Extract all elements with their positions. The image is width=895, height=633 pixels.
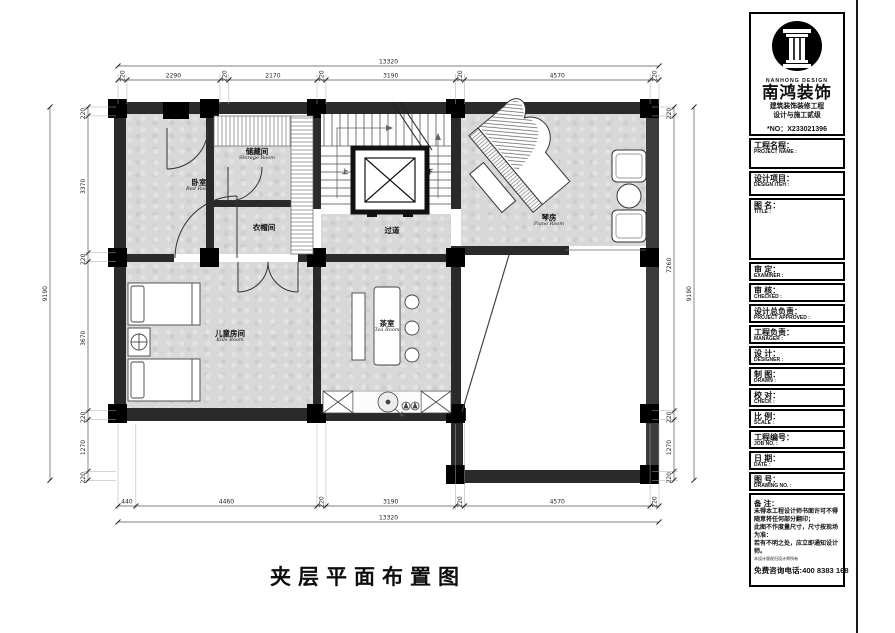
- svg-text:2290: 2290: [166, 73, 181, 80]
- wall-segment: [313, 258, 321, 418]
- notes-fine-print: 本设计版权归设计师所有: [754, 556, 840, 562]
- drawing-sheet: 上 下: [0, 0, 895, 633]
- notes-box: 备 注： 未得本工程设计师书面许可不得 随意将任何部分翻印； 此图不作度量尺寸，…: [749, 493, 845, 587]
- svg-text:9190: 9190: [686, 286, 693, 301]
- svg-text:220: 220: [318, 70, 325, 82]
- field-drawn: 制 图：DRAWN :: [749, 367, 845, 386]
- license-no: *NO：X233021396: [751, 124, 843, 134]
- column-marker: [640, 248, 659, 267]
- column-marker: [108, 248, 127, 267]
- svg-text:13320: 13320: [379, 515, 398, 522]
- svg-text:3370: 3370: [80, 179, 87, 194]
- column-marker: [446, 248, 465, 267]
- field-project-approved: 设计总负责：PROJECT APPROVED :: [749, 304, 845, 323]
- field-manager: 工程负责：MANAGER :: [749, 325, 845, 344]
- svg-text:2170: 2170: [265, 73, 280, 80]
- field-drawing-no: 图 号：DRAWING NO. :: [749, 472, 845, 491]
- svg-text:3190: 3190: [383, 73, 398, 80]
- column-marker: [307, 99, 326, 118]
- staircase-icon: 上 下: [321, 102, 451, 214]
- field-design-item: 设计项目：DESIGN ITEH :: [749, 171, 845, 196]
- svg-text:220: 220: [666, 108, 673, 120]
- field-designer: 设 计：DESIGNER :: [749, 346, 845, 365]
- column-logo-icon: [770, 19, 824, 73]
- column-marker: [446, 404, 465, 423]
- wall-segment: [451, 114, 461, 209]
- wall-segment: [451, 258, 461, 418]
- wall-segment: [646, 102, 659, 483]
- title-block: NANHONG DESIGN 南鸿装饰 建筑装饰装修工程 设计与施工贰级 *NO…: [749, 12, 845, 589]
- svg-text:220: 220: [318, 496, 325, 508]
- brand-line1: 建筑装饰装修工程: [751, 103, 843, 112]
- wall-segment: [451, 246, 569, 255]
- svg-text:7260: 7260: [666, 258, 673, 273]
- brand-name: 南鸿装饰: [751, 84, 843, 103]
- notes-line: 此图不作度量尺寸，尺寸按现场: [754, 525, 840, 533]
- column-marker: [446, 99, 465, 118]
- bay-strip: [321, 390, 451, 408]
- wall-segment: [451, 470, 659, 483]
- notes-line: 若有不明之处，应立即通知设计: [754, 541, 840, 549]
- sheet-border-line: [856, 0, 858, 633]
- svg-text:220: 220: [457, 496, 464, 508]
- svg-text:220: 220: [652, 496, 659, 508]
- column-marker: [640, 404, 659, 423]
- field-project-name: 工程名程：PROJECT NAME :: [749, 138, 845, 169]
- logo-box: NANHONG DESIGN 南鸿装饰 建筑装饰装修工程 设计与施工贰级 *NO…: [749, 12, 845, 136]
- elevator-icon: [353, 148, 427, 217]
- room-label-cloak: 衣帽间: [253, 224, 276, 232]
- room-label-storage: 储藏间Storage Room: [239, 148, 275, 162]
- svg-text:4570: 4570: [550, 73, 565, 80]
- column-marker: [108, 99, 127, 118]
- field-job-no: 工程编号：JOB NO. :: [749, 430, 845, 449]
- svg-text:下: 下: [427, 169, 433, 176]
- notes-line: 随意将任何部分翻印；: [754, 517, 840, 525]
- column-marker: [307, 248, 326, 267]
- column-marker: [640, 465, 659, 484]
- svg-text:220: 220: [221, 70, 228, 82]
- wall-segment: [114, 102, 659, 114]
- svg-text:220: 220: [666, 411, 673, 423]
- room-label-piano: 琴房Piano Room: [534, 214, 564, 228]
- column-marker: [640, 99, 659, 118]
- notes-line: 未得本工程设计师书面许可不得: [754, 509, 840, 517]
- field-check: 校 对：CHECK :: [749, 388, 845, 407]
- svg-text:3190: 3190: [383, 499, 398, 506]
- column-marker: [446, 465, 465, 484]
- room-label-bedroom: 卧室Bed Room: [186, 179, 212, 193]
- field-date: 日 期：DATE :: [749, 451, 845, 470]
- svg-text:220: 220: [80, 108, 87, 120]
- field-examiner: 审 定：EXAMINER :: [749, 262, 845, 281]
- svg-text:220: 220: [80, 472, 87, 484]
- column-marker: [108, 404, 127, 423]
- svg-text:13320: 13320: [379, 59, 398, 66]
- wall-segment: [313, 114, 321, 209]
- svg-text:9190: 9190: [42, 286, 49, 301]
- svg-text:4570: 4570: [550, 499, 565, 506]
- void-diagonal: [462, 250, 646, 412]
- svg-text:440: 440: [121, 499, 133, 506]
- brand-line2: 设计与施工贰级: [751, 112, 843, 121]
- column-marker: [307, 404, 326, 423]
- svg-text:220: 220: [652, 70, 659, 82]
- svg-text:220: 220: [119, 70, 126, 82]
- svg-text:4460: 4460: [219, 499, 234, 506]
- wall-segment: [114, 408, 466, 421]
- svg-text:1270: 1270: [80, 440, 87, 455]
- drawing-title: 夹层平面布置图: [270, 561, 466, 591]
- svg-text:上: 上: [342, 168, 348, 176]
- svg-text:220: 220: [80, 411, 87, 423]
- room-label-tea: 茶室Tea Room: [374, 320, 399, 334]
- wall-pier: [163, 102, 189, 119]
- svg-text:220: 220: [80, 253, 87, 265]
- svg-text:1270: 1270: [666, 440, 673, 455]
- svg-text:220: 220: [457, 70, 464, 82]
- field-scale: 比 例：SCALE :: [749, 409, 845, 428]
- field-title: 图 名：TITLE :: [749, 198, 845, 260]
- column-marker: [200, 248, 219, 267]
- field-checked: 审 核：CHECKED :: [749, 283, 845, 302]
- notes-line: 为准：: [754, 533, 840, 541]
- hotline-phone: 免费咨询电话:400 8383 168: [754, 565, 840, 576]
- column-marker: [200, 99, 219, 118]
- room-label-kids: 儿童房间Kids Room: [215, 330, 245, 344]
- wall-segment: [206, 200, 321, 207]
- notes-title: 备 注：: [754, 498, 840, 509]
- room-label-corridor: 过道: [385, 227, 400, 235]
- svg-text:3670: 3670: [80, 330, 87, 345]
- svg-text:220: 220: [666, 472, 673, 484]
